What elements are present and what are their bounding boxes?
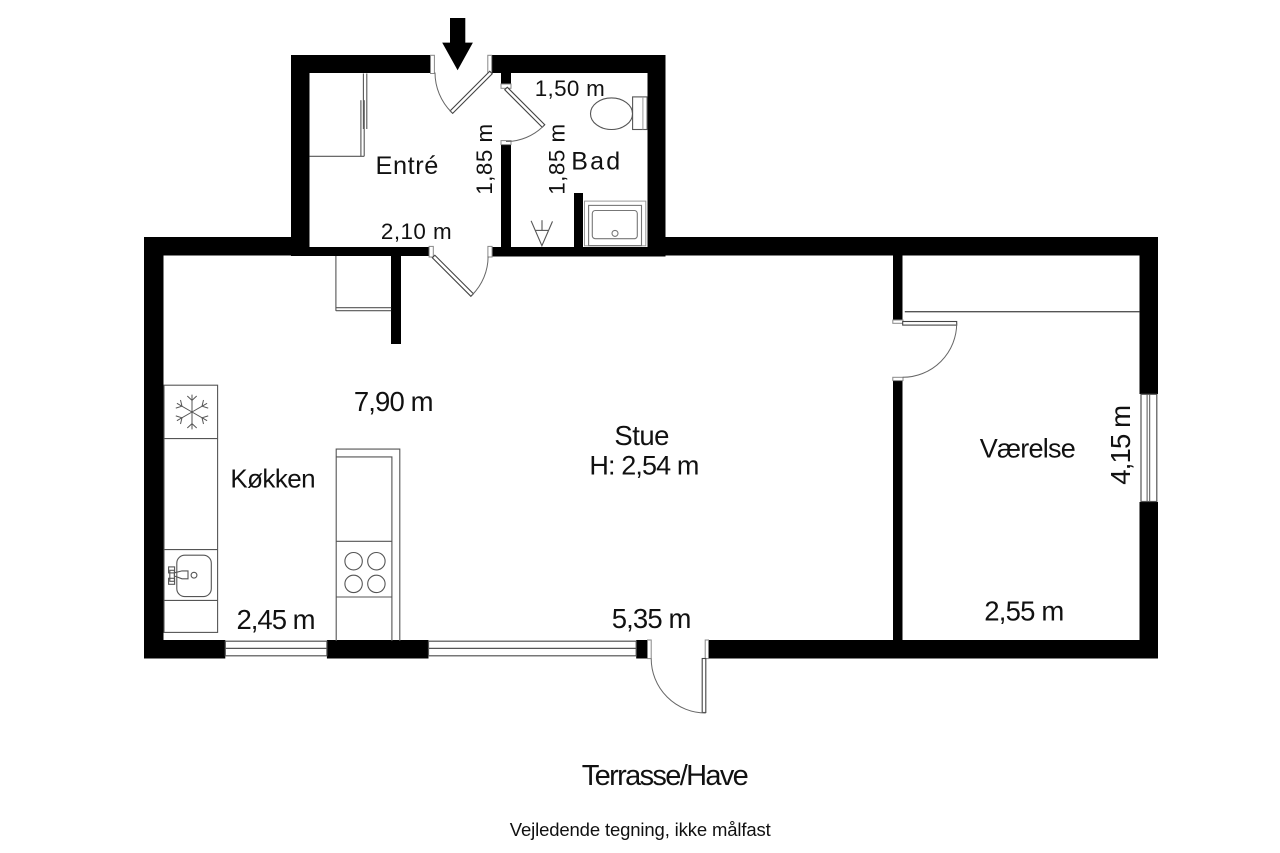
svg-text:Køkken: Køkken [230, 464, 315, 494]
svg-text:7,90 m: 7,90 m [354, 386, 434, 417]
svg-text:Værelse: Værelse [980, 434, 1076, 464]
svg-text:1,85 m: 1,85 m [545, 124, 570, 195]
svg-text:1,50 m: 1,50 m [535, 76, 605, 101]
svg-text:Stue: Stue [614, 420, 669, 451]
svg-text:1,85 m: 1,85 m [472, 124, 497, 195]
svg-text:4,15 m: 4,15 m [1105, 405, 1136, 485]
svg-text:Vejledende tegning, ikke målfa: Vejledende tegning, ikke målfast [510, 819, 771, 840]
svg-text:2,45 m: 2,45 m [236, 604, 315, 635]
svg-text:5,35 m: 5,35 m [612, 603, 692, 634]
svg-text:Bad: Bad [571, 148, 620, 176]
svg-text:2,55 m: 2,55 m [984, 595, 1064, 626]
svg-text:H: 2,54 m: H: 2,54 m [589, 451, 699, 481]
svg-text:Terrasse/Have: Terrasse/Have [582, 760, 749, 792]
svg-text:2,10 m: 2,10 m [381, 219, 452, 244]
svg-text:Entré: Entré [376, 152, 439, 180]
